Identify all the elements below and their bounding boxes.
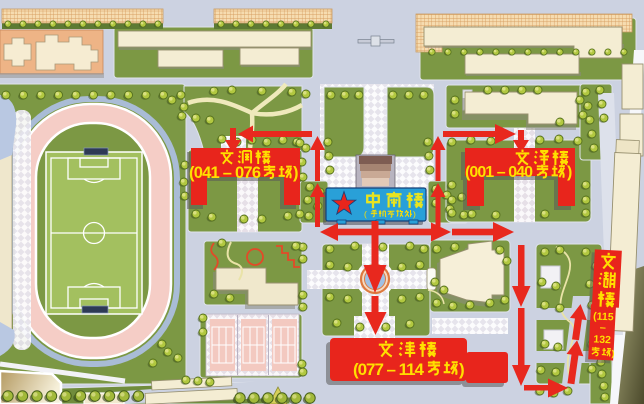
svg-text:(: ( xyxy=(364,209,367,219)
svg-text:): ) xyxy=(459,360,465,379)
svg-text:(077 – 114: (077 – 114 xyxy=(353,360,425,379)
svg-text:): ) xyxy=(413,209,416,219)
svg-text:): ) xyxy=(567,164,572,181)
svg-text:(001 – 040: (001 – 040 xyxy=(465,164,533,181)
svg-text:): ) xyxy=(293,164,299,182)
svg-text:–: – xyxy=(599,322,606,334)
svg-text:(041 – 076: (041 – 076 xyxy=(189,164,261,182)
svg-text:): ) xyxy=(611,348,615,358)
svg-text:132: 132 xyxy=(593,333,611,346)
